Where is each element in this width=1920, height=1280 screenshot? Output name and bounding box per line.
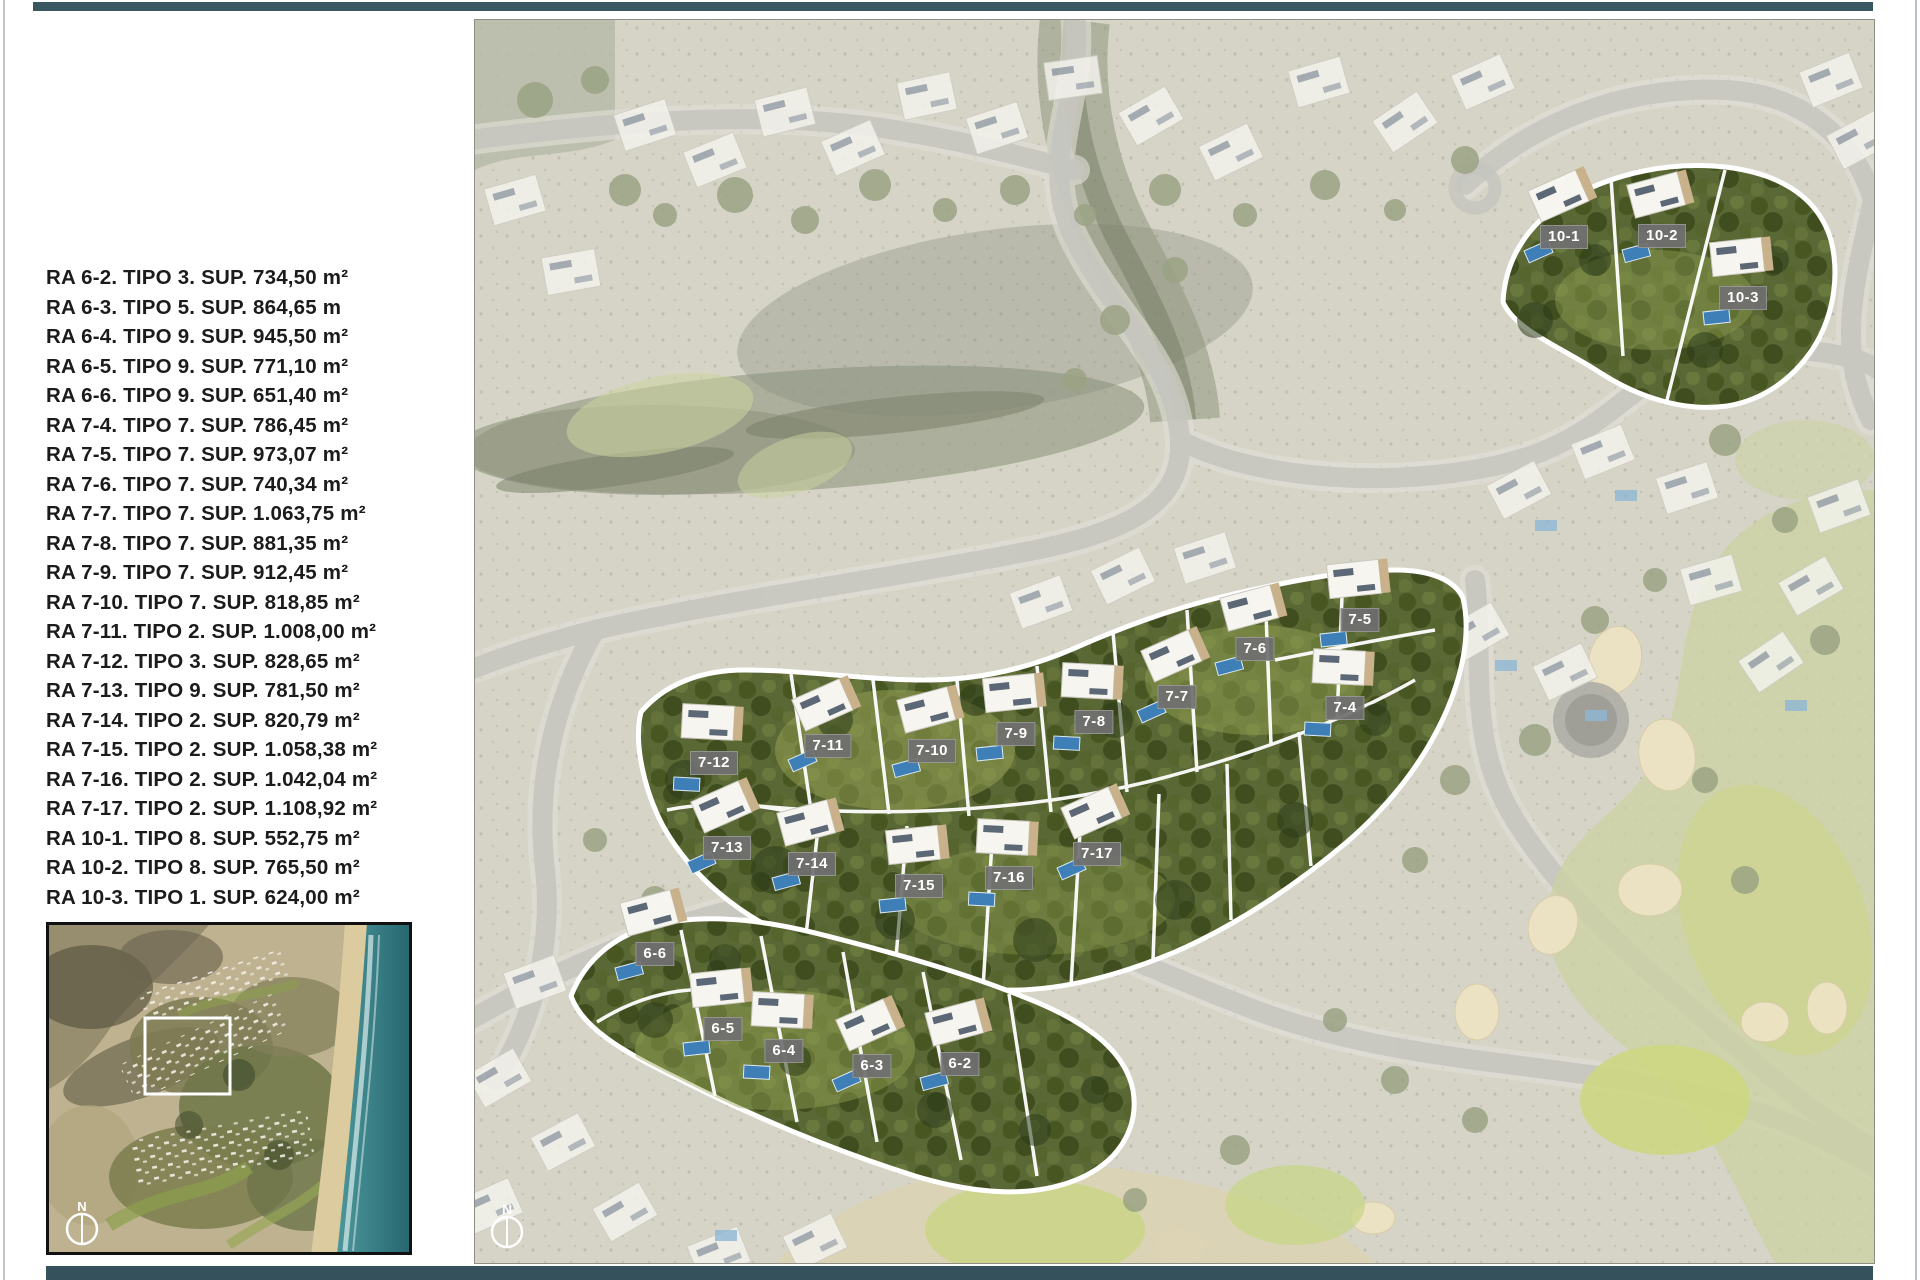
plot-list-item: RA 6-4. TIPO 9. SUP. 945,50 m² — [46, 322, 466, 352]
top-accent-bar — [33, 2, 1873, 11]
plot-list-item: RA 7-9. TIPO 7. SUP. 912,45 m² — [46, 558, 466, 588]
villa-10-3 — [1709, 236, 1773, 276]
pool-6-4 — [743, 1065, 770, 1079]
plot-label-6-6: 6-6 — [635, 942, 674, 966]
plot-list-item: RA 10-3. TIPO 1. SUP. 624,00 m² — [46, 883, 466, 913]
villa-6-5 — [689, 967, 753, 1007]
minimap-compass-label: N — [77, 1199, 86, 1214]
pool-10-3 — [1703, 309, 1730, 325]
plot-list-item: RA 7-6. TIPO 7. SUP. 740,34 m² — [46, 470, 466, 500]
plot-label-7-10: 7-10 — [908, 739, 956, 763]
plot-label-7-12: 7-12 — [690, 751, 738, 775]
villa-7-9 — [982, 672, 1046, 712]
plot-label-7-14: 7-14 — [788, 852, 836, 876]
minimap-overview: N — [46, 922, 412, 1255]
site-plan-map: N 10-110-210-37-127-117-107-97-87-77-67-… — [474, 19, 1875, 1264]
plot-label-7-8: 7-8 — [1074, 710, 1113, 734]
plot-label-7-4: 7-4 — [1325, 696, 1364, 720]
plot-label-7-13: 7-13 — [703, 836, 751, 860]
plot-list-item: RA 7-17. TIPO 2. SUP. 1.108,92 m² — [46, 794, 466, 824]
plot-label-7-5: 7-5 — [1340, 608, 1379, 632]
pool-7-8 — [1053, 736, 1080, 750]
plot-label-7-17: 7-17 — [1073, 842, 1121, 866]
plot-list-item: RA 6-2. TIPO 3. SUP. 734,50 m² — [46, 263, 466, 293]
villa-7-15 — [885, 824, 949, 864]
pool-7-5 — [1320, 631, 1347, 647]
plot-label-6-3: 6-3 — [852, 1054, 891, 1078]
plot-list-item: RA 7-14. TIPO 2. SUP. 820,79 m² — [46, 706, 466, 736]
plot-label-6-5: 6-5 — [703, 1017, 742, 1041]
pool-6-5 — [683, 1040, 710, 1056]
plot-list-item: RA 7-11. TIPO 2. SUP. 1.008,00 m² — [46, 617, 466, 647]
plot-list-item: RA 7-8. TIPO 7. SUP. 881,35 m² — [46, 529, 466, 559]
plot-label-10-2: 10-2 — [1638, 224, 1686, 248]
plot-list-item: RA 7-13. TIPO 9. SUP. 781,50 m² — [46, 676, 466, 706]
plot-label-7-16: 7-16 — [985, 866, 1033, 890]
villa-7-5 — [1326, 558, 1390, 598]
plot-list-item: RA 7-5. TIPO 7. SUP. 973,07 m² — [46, 440, 466, 470]
plot-list-item: RA 7-16. TIPO 2. SUP. 1.042,04 m² — [46, 765, 466, 795]
plot-label-7-9: 7-9 — [996, 722, 1035, 746]
right-edge-line — [1915, 0, 1917, 1280]
plot-list-item: RA 6-3. TIPO 5. SUP. 864,65 m — [46, 293, 466, 323]
plot-list-item: RA 7-4. TIPO 7. SUP. 786,45 m² — [46, 411, 466, 441]
plot-list-item: RA 10-1. TIPO 8. SUP. 552,75 m² — [46, 824, 466, 854]
minimap-aerial-image: N — [49, 925, 409, 1252]
plot-label-10-1: 10-1 — [1540, 225, 1588, 249]
villa-6-4 — [751, 992, 814, 1029]
pool-7-15 — [879, 897, 906, 913]
plot-list-item: RA 7-15. TIPO 2. SUP. 1.058,38 m² — [46, 735, 466, 765]
plot-label-6-2: 6-2 — [940, 1052, 979, 1076]
plot-list-item: RA 10-2. TIPO 8. SUP. 765,50 m² — [46, 853, 466, 883]
villa-7-16 — [976, 819, 1039, 856]
pool-7-4 — [1304, 722, 1331, 736]
pool-7-16 — [968, 892, 995, 906]
villa-7-8 — [1061, 663, 1124, 700]
villa-7-12 — [681, 704, 744, 741]
site-plan-aerial-render: N — [475, 20, 1874, 1263]
plot-label-7-7: 7-7 — [1157, 685, 1196, 709]
plot-label-7-11: 7-11 — [804, 734, 851, 758]
plot-list-item: RA 7-10. TIPO 7. SUP. 818,85 m² — [46, 588, 466, 618]
plot-list-item: RA 7-12. TIPO 3. SUP. 828,65 m² — [46, 647, 466, 677]
left-edge-line — [3, 0, 5, 1280]
map-compass-label: N — [502, 1201, 512, 1217]
plot-list-item: RA 7-7. TIPO 7. SUP. 1.063,75 m² — [46, 499, 466, 529]
plot-label-10-3: 10-3 — [1719, 286, 1767, 310]
plot-list: RA 6-2. TIPO 3. SUP. 734,50 m²RA 6-3. TI… — [46, 263, 466, 912]
plot-label-6-4: 6-4 — [764, 1039, 803, 1063]
site-plan-page: RA 6-2. TIPO 3. SUP. 734,50 m²RA 6-3. TI… — [0, 0, 1920, 1280]
pool-7-12 — [673, 777, 700, 791]
plot-list-item: RA 6-6. TIPO 9. SUP. 651,40 m² — [46, 381, 466, 411]
plot-label-7-6: 7-6 — [1235, 637, 1274, 661]
plot-list-item: RA 6-5. TIPO 9. SUP. 771,10 m² — [46, 352, 466, 382]
plot-label-7-15: 7-15 — [895, 874, 943, 898]
pool-7-9 — [976, 745, 1003, 761]
villa-7-4 — [1312, 649, 1375, 686]
bottom-accent-bar — [46, 1266, 1873, 1280]
